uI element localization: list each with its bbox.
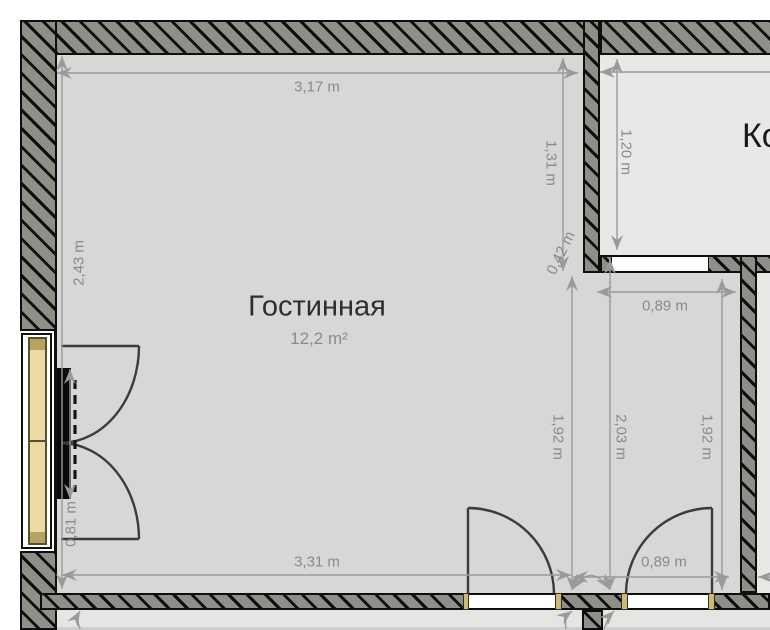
window-cap-bottom [30,532,45,543]
dim-label-right-upper: 1,31 m [543,140,560,186]
room-label-living[interactable]: Гостинная [248,291,386,324]
doorway-adjacent-room[interactable] [612,257,708,271]
room-floor-right-strip [757,273,770,593]
room-area-living: 12,2 m² [290,329,348,349]
room-floor-living-nook[interactable] [583,273,740,593]
dim-label-bottom-right: 0,89 m [641,554,687,571]
doorway-jamb-line-right [708,255,709,273]
dim-label-top-width: 3,17 m [294,79,340,96]
wall-divider-vertical[interactable] [583,20,600,273]
window-cap-top [30,339,45,350]
doorway-jamb-line-left [611,255,612,273]
room-label-adjacent[interactable]: Ко [742,117,770,156]
dim-label-nook-mid: 2,03 m [613,414,630,460]
door-jamb [708,593,715,610]
dim-label-nook-left: 1,92 m [550,414,567,460]
dim-label-left-height: 2,43 m [71,240,88,286]
tv-icon[interactable] [57,368,71,499]
wall-left-upper[interactable] [20,20,57,331]
window-divider [28,440,47,442]
dim-label-nook-top: 0,89 m [642,298,688,315]
door-opening-bottom-right[interactable] [621,595,715,608]
wall-top-living[interactable] [20,20,586,55]
floor-plan-canvas: 3,17 m 2,43 m 1,31 m 1,20 m 0,42 m 0,89 … [0,0,770,630]
dim-label-bottom-width: 3,31 m [294,554,340,571]
door-jamb [463,593,469,610]
wall-right-vertical[interactable] [740,255,757,593]
dim-label-nook-right: 1,92 m [699,414,716,460]
door-jamb [621,593,628,610]
dim-label-kroom-left: 1,20 m [618,129,635,175]
dim-label-window-width: 0,81 m [63,501,80,547]
wall-left-lower[interactable] [20,551,57,630]
room-floor-living[interactable] [57,55,583,593]
wall-top-adjacent[interactable] [600,20,770,55]
wall-stub-below[interactable] [582,610,603,630]
door-opening-bottom-left[interactable] [463,595,562,608]
door-jamb [555,593,562,610]
